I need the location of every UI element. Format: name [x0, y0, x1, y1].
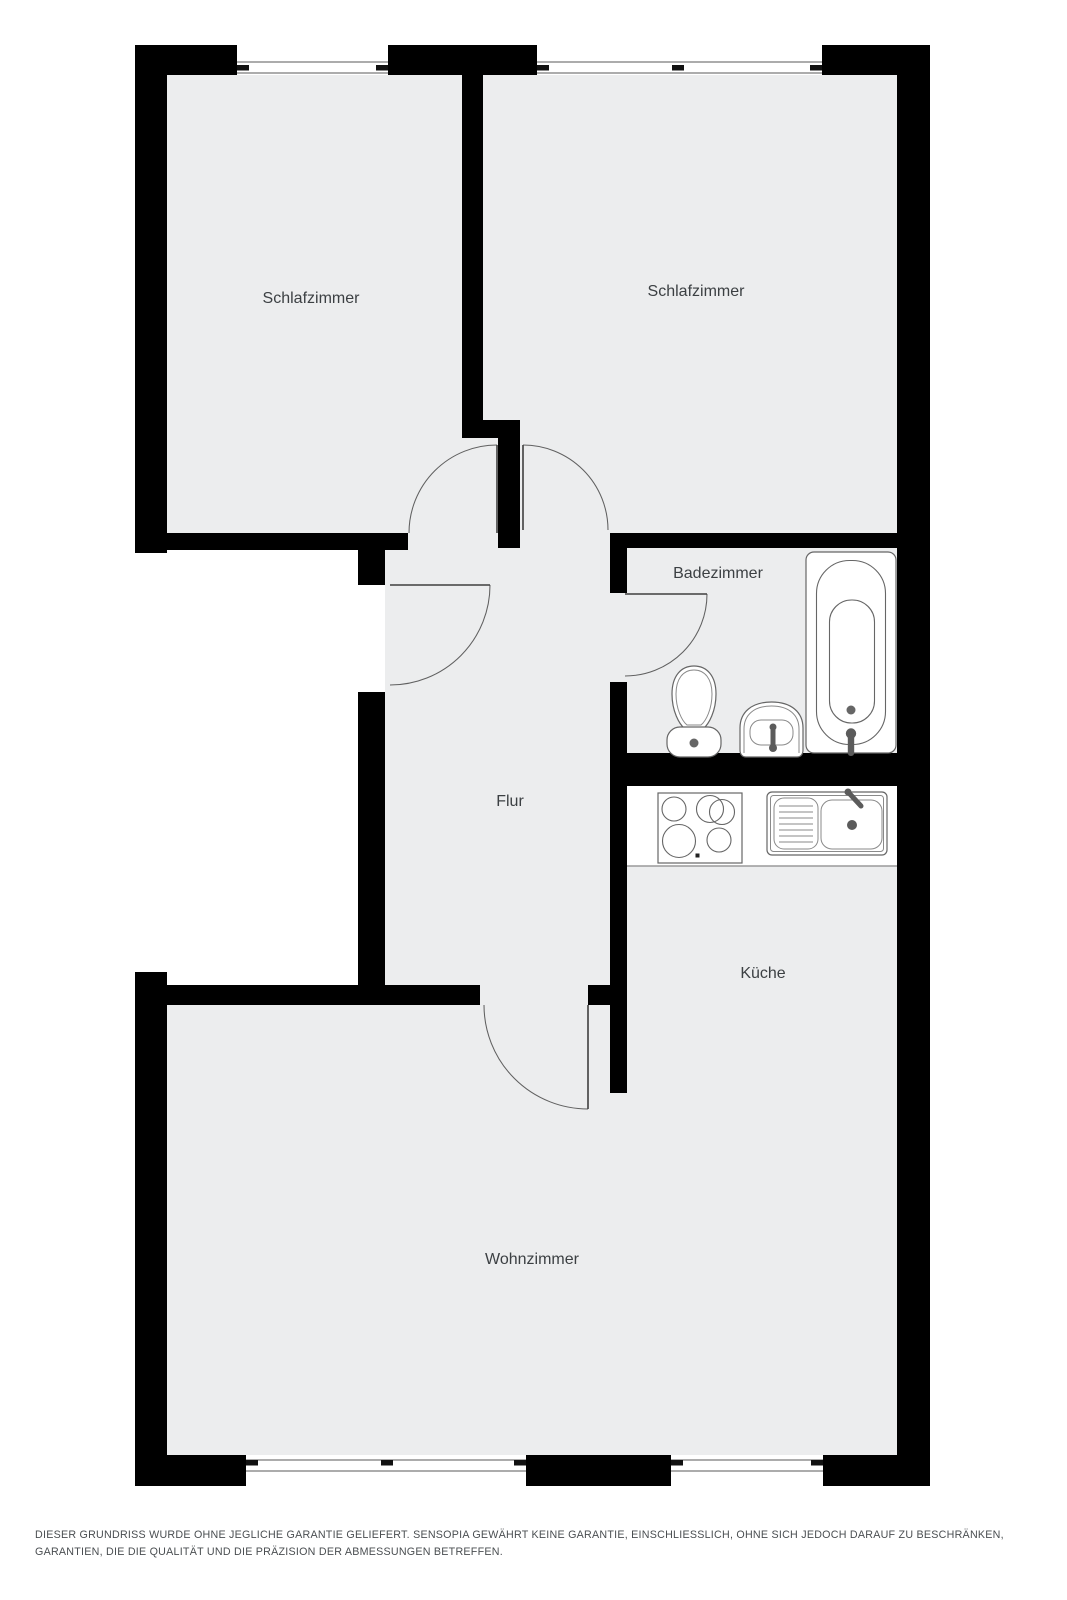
room-label-schlafzimmer-1: Schlafzimmer [263, 290, 361, 307]
floorplan-canvas: Schlafzimmer Schlafzimmer Badezimmer Flu… [0, 0, 1067, 1600]
kitchen-sink-icon [767, 789, 887, 856]
room-floor-flur [385, 548, 610, 985]
doorway-wohnzimmer [480, 985, 588, 1005]
disclaimer-text: DIESER GRUNDRISS WURDE OHNE JEGLICHE GAR… [35, 1527, 1025, 1560]
room-floor-wohnzimmer [167, 1005, 897, 1455]
room-label-badezimmer: Badezimmer [673, 565, 763, 582]
room-label-wohnzimmer: Wohnzimmer [485, 1251, 580, 1268]
room-floor-schlafzimmer-2 [483, 75, 897, 533]
floorplan-page: Schlafzimmer Schlafzimmer Badezimmer Flu… [0, 0, 1067, 1600]
room-label-kueche: Küche [740, 965, 785, 982]
window-symbol [246, 1460, 526, 1471]
window-symbol [671, 1460, 823, 1471]
window-symbol [537, 62, 822, 73]
doorway-schlafzimmer-2 [520, 533, 610, 549]
doorway-schlafzimmer-1 [408, 533, 498, 550]
stove-icon [658, 793, 742, 863]
doorway-badezimmer [610, 593, 627, 682]
room-label-flur: Flur [496, 793, 524, 810]
bathtub-icon [806, 552, 896, 756]
toilet-icon [667, 666, 721, 757]
window-symbol [237, 62, 388, 73]
room-label-schlafzimmer-2: Schlafzimmer [648, 283, 746, 300]
washbasin-icon [740, 702, 803, 757]
